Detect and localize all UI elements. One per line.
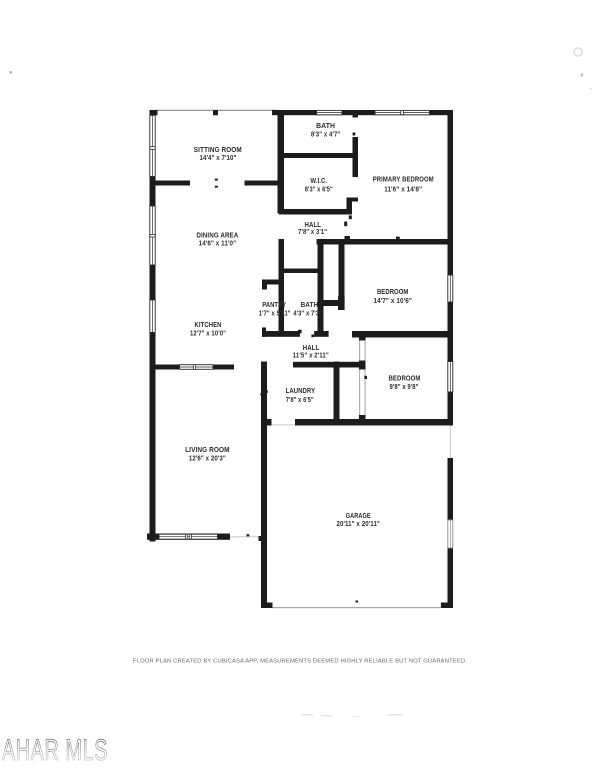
svg-text:BATH: BATH <box>316 121 335 130</box>
svg-text:9'8" x 9'8": 9'8" x 9'8" <box>390 384 419 391</box>
svg-text:1'7" x 5'11": 1'7" x 5'11" <box>259 311 291 318</box>
svg-text:W.I.C.: W.I.C. <box>311 176 328 185</box>
svg-text:KITCHEN: KITCHEN <box>195 320 222 329</box>
svg-text:14'6" x 11'0": 14'6" x 11'0" <box>199 240 237 247</box>
svg-text:8'3" x 4'7": 8'3" x 4'7" <box>311 132 341 139</box>
svg-text:LIVING ROOM: LIVING ROOM <box>185 445 230 454</box>
svg-text:7'8" x 3'1": 7'8" x 3'1" <box>298 229 327 236</box>
svg-text:12'7" x 10'0": 12'7" x 10'0" <box>190 331 226 338</box>
svg-text:BATH: BATH <box>301 300 319 309</box>
svg-text:HALL: HALL <box>305 220 322 229</box>
svg-text:7'8" x 6'5": 7'8" x 6'5" <box>286 397 314 404</box>
svg-text:14'4" x 7'10": 14'4" x 7'10" <box>200 155 237 162</box>
svg-text:20'11" x 20'11": 20'11" x 20'11" <box>336 521 380 528</box>
svg-text:8'3" x 6'5": 8'3" x 6'5" <box>305 186 333 193</box>
svg-text:BEDROOM: BEDROOM <box>389 374 421 383</box>
svg-text:LAUNDRY: LAUNDRY <box>286 386 316 395</box>
svg-text:11'5" x 2'11": 11'5" x 2'11" <box>293 353 329 360</box>
svg-text:PRIMARY BEDROOM: PRIMARY BEDROOM <box>373 175 434 184</box>
svg-text:GARAGE: GARAGE <box>346 511 371 520</box>
svg-text:11'6" x 14'8": 11'6" x 14'8" <box>384 186 422 193</box>
svg-text:AHAR MLS: AHAR MLS <box>2 734 108 767</box>
svg-text:SITTING ROOM: SITTING ROOM <box>194 145 242 154</box>
svg-text:PANTRY: PANTRY <box>262 300 286 309</box>
svg-text:4'3" x 7'3": 4'3" x 7'3" <box>293 311 322 318</box>
svg-text:BEDROOM: BEDROOM <box>377 287 409 296</box>
svg-text:FLOOR PLAN CREATED BY CUBICASA: FLOOR PLAN CREATED BY CUBICASA APP. MEAS… <box>133 658 467 664</box>
svg-text:HALL: HALL <box>303 343 320 352</box>
svg-text:12'6" x 20'3": 12'6" x 20'3" <box>189 456 226 463</box>
svg-text:DINING AREA: DINING AREA <box>196 231 238 240</box>
svg-text:14'7" x 10'6": 14'7" x 10'6" <box>373 298 412 305</box>
